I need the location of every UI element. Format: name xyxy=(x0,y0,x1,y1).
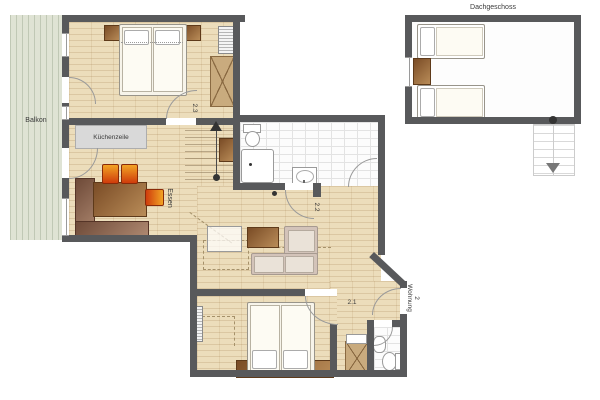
window xyxy=(62,198,69,236)
wall-dining-bottom xyxy=(62,235,197,242)
room-number-2-3: 2.3 xyxy=(190,93,200,123)
entrance-label-number: 2 xyxy=(413,296,420,300)
wall-bedroom-right xyxy=(233,15,240,122)
balcony-floor xyxy=(10,15,62,240)
balcony-door-opening xyxy=(62,148,69,178)
wall-bath-bottom xyxy=(233,183,285,190)
wall-bath-right xyxy=(378,115,385,190)
stair-walkline xyxy=(216,128,217,176)
dining-table xyxy=(93,182,147,217)
room-number-2-1: 2.1 xyxy=(340,298,364,307)
window xyxy=(62,106,69,120)
room-number-2-2: 2.2 xyxy=(312,192,322,222)
dining-chair xyxy=(102,164,119,184)
coffee-table xyxy=(247,227,279,248)
entrance-label-name: Wohnung xyxy=(406,284,413,312)
wall-bath-top xyxy=(233,115,385,122)
stair-start-dot-icon xyxy=(213,174,220,181)
attic-single-bed xyxy=(417,85,485,120)
dining-label: Essen xyxy=(165,178,175,218)
shower xyxy=(241,149,274,183)
double-bed-bottom xyxy=(247,302,315,376)
entrance-label: Wohnung 2 xyxy=(403,281,423,315)
tv-console xyxy=(207,226,242,252)
wc-door-opening xyxy=(374,320,392,327)
bed-fold-line xyxy=(121,42,183,43)
attic-wall-right xyxy=(574,15,581,124)
wall-top xyxy=(62,15,245,22)
dining-chair xyxy=(145,189,164,206)
toilet-bowl xyxy=(245,131,260,147)
living-door-opening xyxy=(285,183,313,190)
dining-chair xyxy=(121,164,138,184)
bedroom-bottom-door-opening xyxy=(305,289,337,296)
wall-right-living xyxy=(378,183,385,255)
hall-washbasin xyxy=(346,334,367,344)
radiator xyxy=(218,26,234,54)
roof-slope-dashed-line xyxy=(202,316,235,317)
balcony-door-opening xyxy=(62,77,69,103)
attic-wall-top xyxy=(405,15,581,22)
stairs-up-arrow-icon xyxy=(210,121,222,131)
floor-plan: Küchenzeile xyxy=(0,0,600,400)
stair-start-dot-icon xyxy=(549,116,557,124)
door-stop-dot-icon xyxy=(272,191,277,196)
attic-dresser xyxy=(413,58,431,85)
stairs-down-arrow-icon xyxy=(546,163,560,173)
attic-label: Dachgeschoss xyxy=(445,2,541,13)
wall-wc-left xyxy=(367,327,374,377)
attic-single-bed xyxy=(417,24,485,59)
balcony-label: Balkon xyxy=(14,115,58,125)
window xyxy=(62,33,69,57)
roof-slope-dashed-line xyxy=(234,316,235,346)
double-bed-top xyxy=(119,24,187,96)
wall-bath-left xyxy=(233,115,240,190)
wall-mid-vertical xyxy=(190,235,197,377)
sofa-corner-horizontal xyxy=(251,253,318,275)
wardrobe xyxy=(210,56,235,107)
kitchenette-counter: Küchenzeile xyxy=(75,125,147,149)
wall-bottom xyxy=(190,370,407,377)
kitchenette-label: Küchenzeile xyxy=(93,133,128,142)
attic-window xyxy=(405,57,412,87)
